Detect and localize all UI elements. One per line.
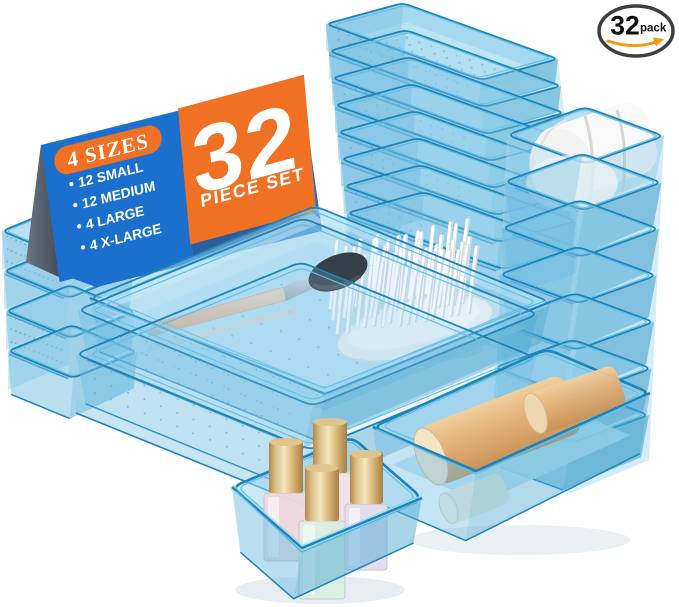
- svg-text:pack: pack: [640, 23, 667, 35]
- svg-text:32: 32: [610, 11, 639, 41]
